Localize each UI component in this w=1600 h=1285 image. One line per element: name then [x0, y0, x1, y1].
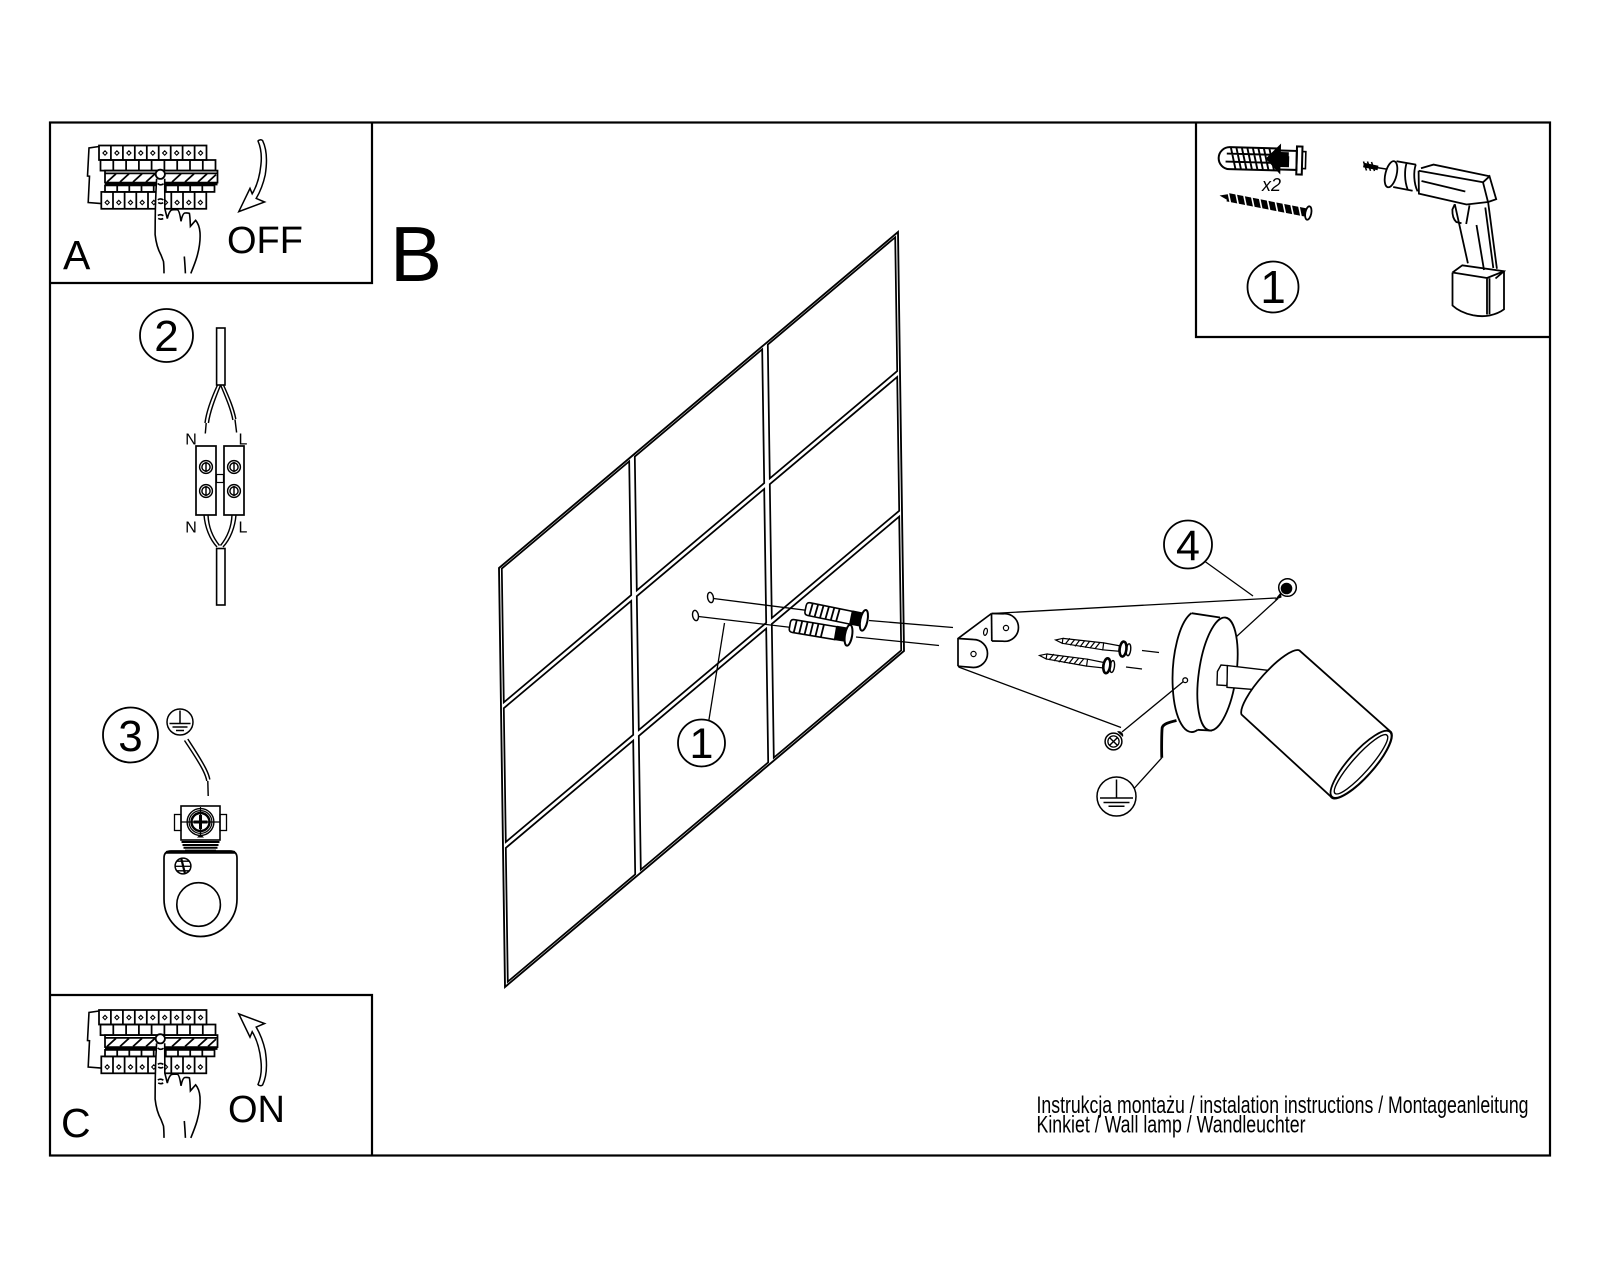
svg-text:3: 3	[118, 712, 142, 761]
svg-text:Kinkiet / Wall lamp / Wandleuc: Kinkiet / Wall lamp / Wandleuchter	[1037, 1112, 1306, 1139]
svg-text:N: N	[185, 432, 197, 449]
svg-text:C: C	[61, 1100, 91, 1146]
svg-text:ON: ON	[228, 1089, 285, 1131]
svg-text:2: 2	[154, 312, 178, 361]
svg-text:L: L	[239, 520, 248, 537]
svg-text:N: N	[185, 520, 197, 537]
svg-text:1: 1	[690, 720, 714, 768]
svg-text:OFF: OFF	[227, 220, 303, 262]
svg-text:B: B	[390, 210, 442, 298]
svg-text:x2: x2	[1261, 175, 1281, 195]
svg-text:A: A	[63, 232, 91, 278]
svg-text:4: 4	[1176, 522, 1200, 570]
svg-text:1: 1	[1260, 261, 1286, 313]
